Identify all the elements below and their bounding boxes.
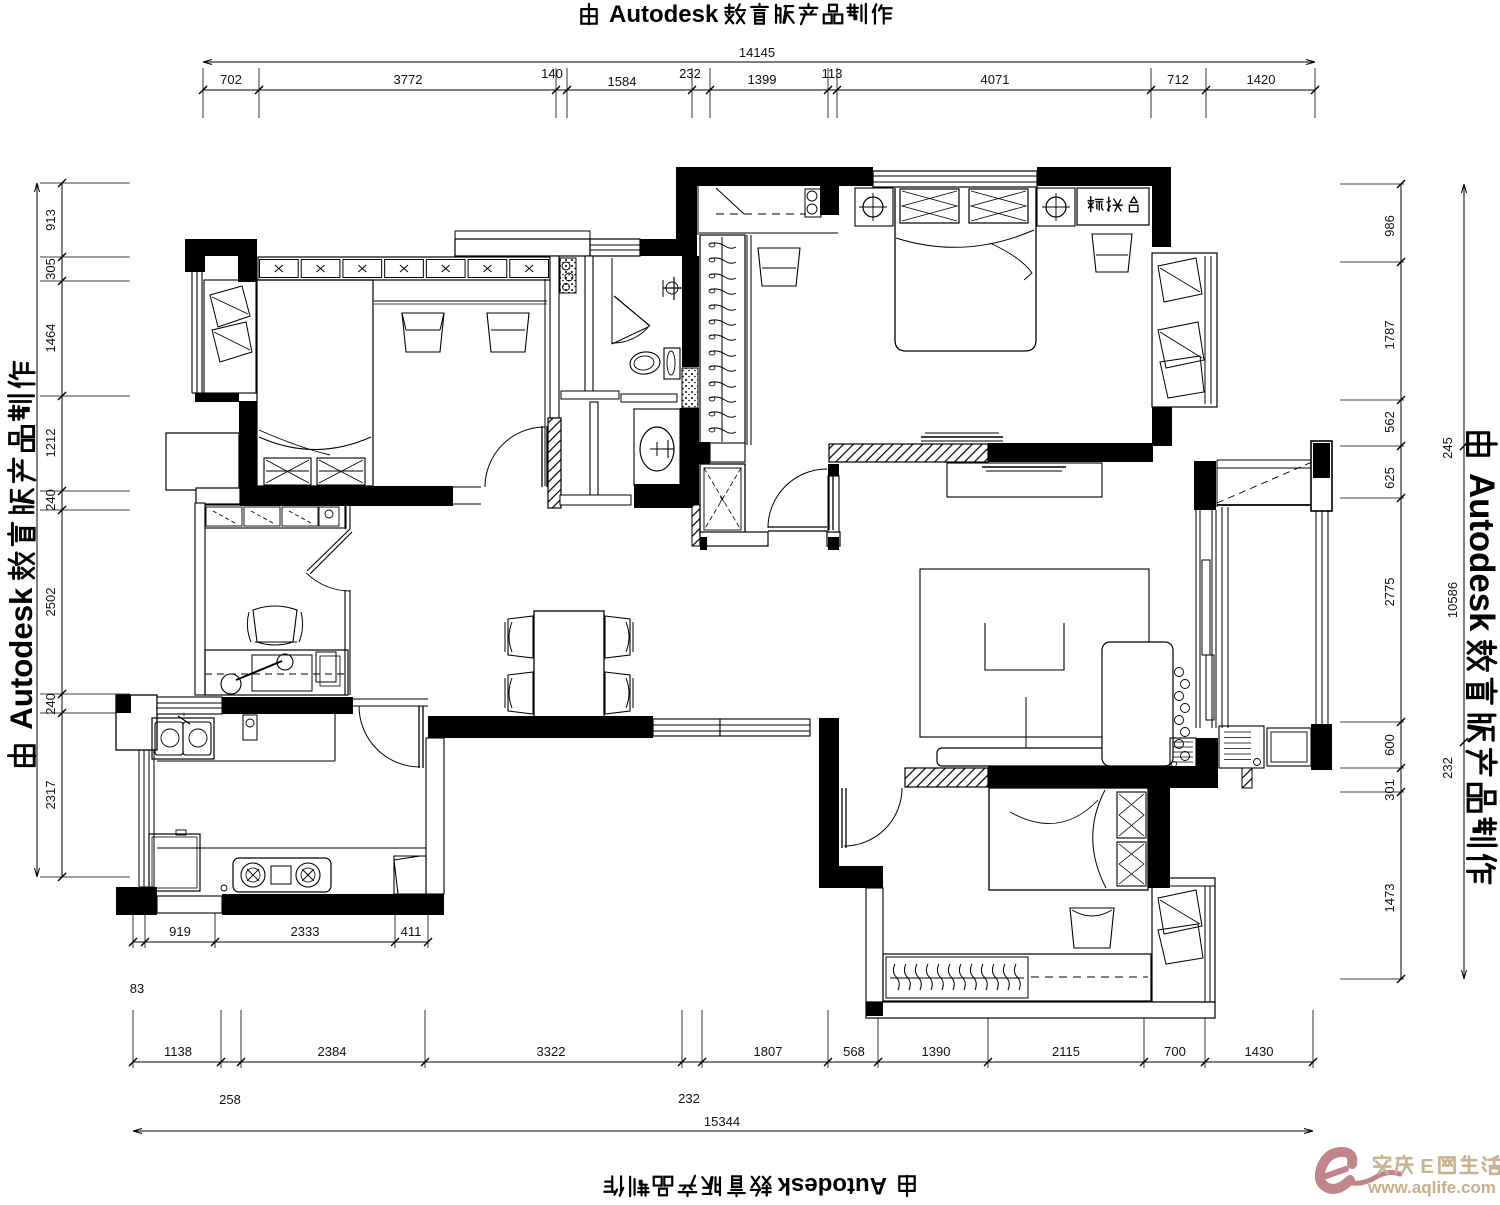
svg-text:258: 258 <box>219 1092 241 1107</box>
svg-text:2115: 2115 <box>1052 1044 1080 1059</box>
svg-text:1807: 1807 <box>754 1044 783 1059</box>
svg-text:140: 140 <box>541 66 563 81</box>
svg-text:x: x <box>720 494 725 505</box>
svg-text:232: 232 <box>679 66 701 81</box>
svg-text:83: 83 <box>130 981 144 996</box>
svg-text:1430: 1430 <box>1245 1044 1274 1059</box>
svg-text:240: 240 <box>43 489 58 511</box>
svg-text:10586: 10586 <box>1445 582 1460 618</box>
svg-text:245: 245 <box>1440 437 1455 459</box>
svg-text:712: 712 <box>1167 72 1189 87</box>
svg-text:702: 702 <box>220 72 242 87</box>
svg-text:Autodesk: Autodesk <box>1462 473 1500 632</box>
svg-text:411: 411 <box>401 924 422 939</box>
svg-text:Autodesk: Autodesk <box>777 1172 887 1199</box>
svg-text:232: 232 <box>1440 757 1455 779</box>
svg-text:2333: 2333 <box>291 924 320 939</box>
svg-text:E: E <box>1420 1156 1433 1178</box>
svg-text:1464: 1464 <box>43 324 58 353</box>
svg-text:562: 562 <box>1382 411 1397 433</box>
svg-text:305: 305 <box>43 258 58 280</box>
svg-text:2317: 2317 <box>43 781 58 810</box>
svg-text:1399: 1399 <box>748 72 777 87</box>
svg-text:1138: 1138 <box>164 1044 192 1059</box>
svg-text:*: * <box>182 711 186 721</box>
svg-text:2502: 2502 <box>43 588 58 617</box>
svg-text:1584: 1584 <box>608 74 637 89</box>
svg-text:Autodesk: Autodesk <box>609 1 719 28</box>
svg-text:113: 113 <box>822 66 843 81</box>
svg-text:1787: 1787 <box>1382 321 1397 350</box>
svg-text:625: 625 <box>1382 467 1397 489</box>
svg-text:15344: 15344 <box>704 1114 740 1129</box>
svg-text:240: 240 <box>43 693 58 715</box>
svg-text:3772: 3772 <box>394 72 423 87</box>
svg-text:www.aqlife.com: www.aqlife.com <box>1367 1178 1496 1197</box>
svg-text:1420: 1420 <box>1247 72 1276 87</box>
svg-text:3322: 3322 <box>537 1044 566 1059</box>
svg-text:1473: 1473 <box>1382 884 1397 913</box>
svg-text:2384: 2384 <box>318 1044 347 1059</box>
svg-text:700: 700 <box>1164 1044 1186 1059</box>
svg-text:Autodesk: Autodesk <box>4 587 39 730</box>
svg-text:919: 919 <box>169 924 191 939</box>
svg-text:1390: 1390 <box>922 1044 951 1059</box>
svg-text:232: 232 <box>678 1091 700 1106</box>
svg-text:600: 600 <box>1382 734 1397 756</box>
svg-text:913: 913 <box>43 209 58 231</box>
svg-text:4071: 4071 <box>981 72 1010 87</box>
svg-text:568: 568 <box>843 1044 865 1059</box>
svg-text:301: 301 <box>1382 779 1397 801</box>
svg-text:14145: 14145 <box>739 45 775 60</box>
svg-text:986: 986 <box>1382 215 1397 237</box>
svg-text:1212: 1212 <box>43 429 58 458</box>
svg-text:2775: 2775 <box>1382 578 1397 607</box>
